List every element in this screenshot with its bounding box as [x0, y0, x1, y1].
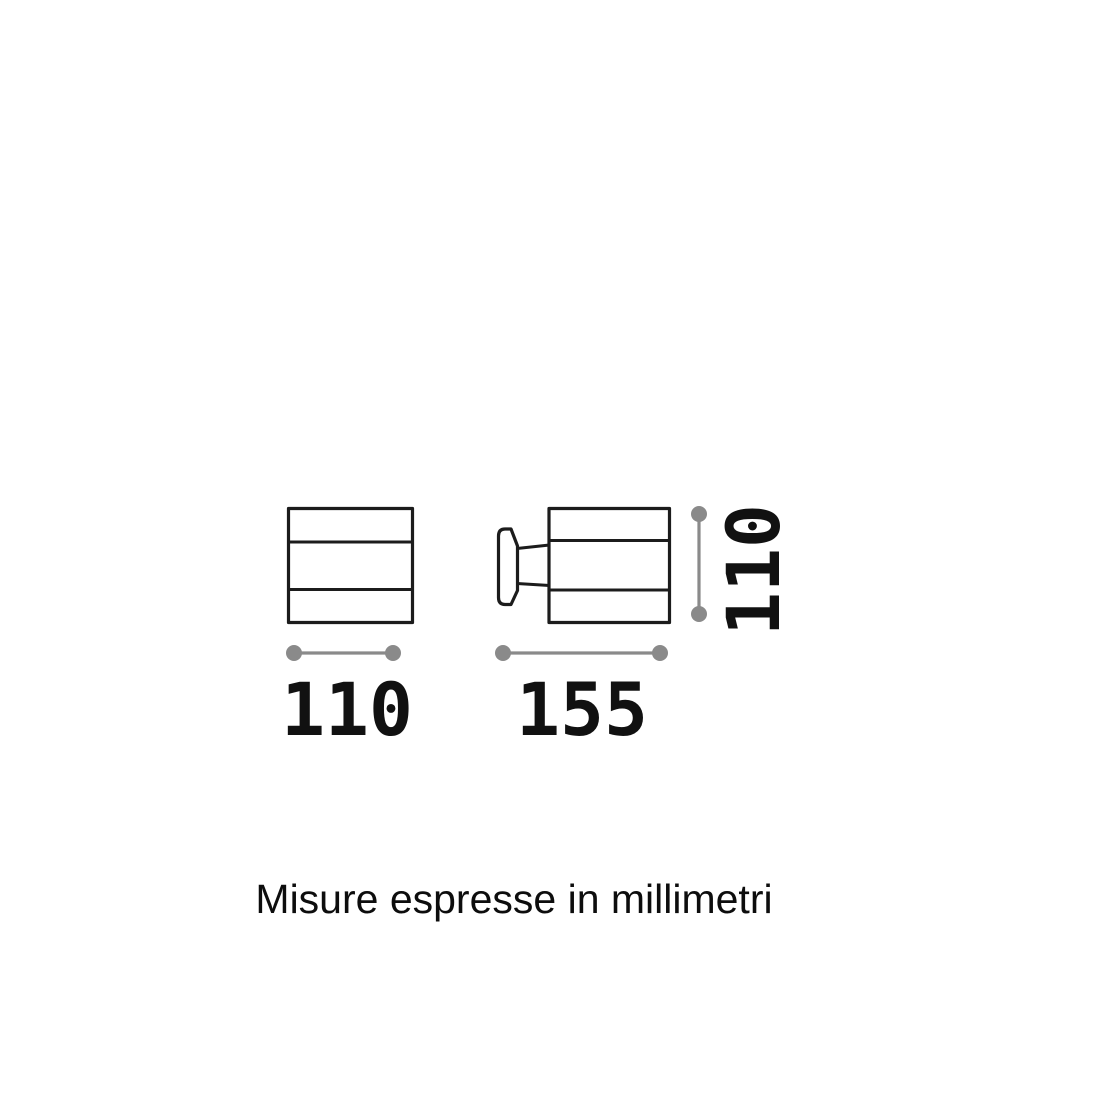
side-depth-dimension-dot-left — [495, 645, 511, 661]
bracket-arm-bottom — [517, 584, 550, 586]
dimension-diagram-page: 110 155 110 Misure espresse in millimetr… — [0, 0, 1100, 1100]
height-dimension-dot-bottom — [691, 606, 707, 622]
height-dimension-dot-top — [691, 506, 707, 522]
bracket-arm-top — [517, 545, 550, 549]
front-width-dimension-dot-right — [385, 645, 401, 661]
side-height-label: 110 — [712, 504, 797, 636]
side-view-body — [549, 509, 670, 623]
front-view-body — [289, 509, 413, 623]
height-dimension — [691, 506, 707, 622]
side-depth-dimension — [495, 645, 668, 661]
front-width-dimension-dot-left — [286, 645, 302, 661]
units-caption: Misure espresse in millimetri — [255, 876, 772, 923]
side-depth-dimension-dot-right — [652, 645, 668, 661]
side-view — [499, 509, 670, 623]
front-view — [289, 509, 413, 623]
front-width-label: 110 — [281, 668, 413, 753]
wall-plate — [499, 529, 518, 605]
side-depth-label: 155 — [516, 668, 648, 753]
front-width-dimension — [286, 645, 401, 661]
technical-drawing: 110 155 110 — [0, 0, 1100, 1100]
